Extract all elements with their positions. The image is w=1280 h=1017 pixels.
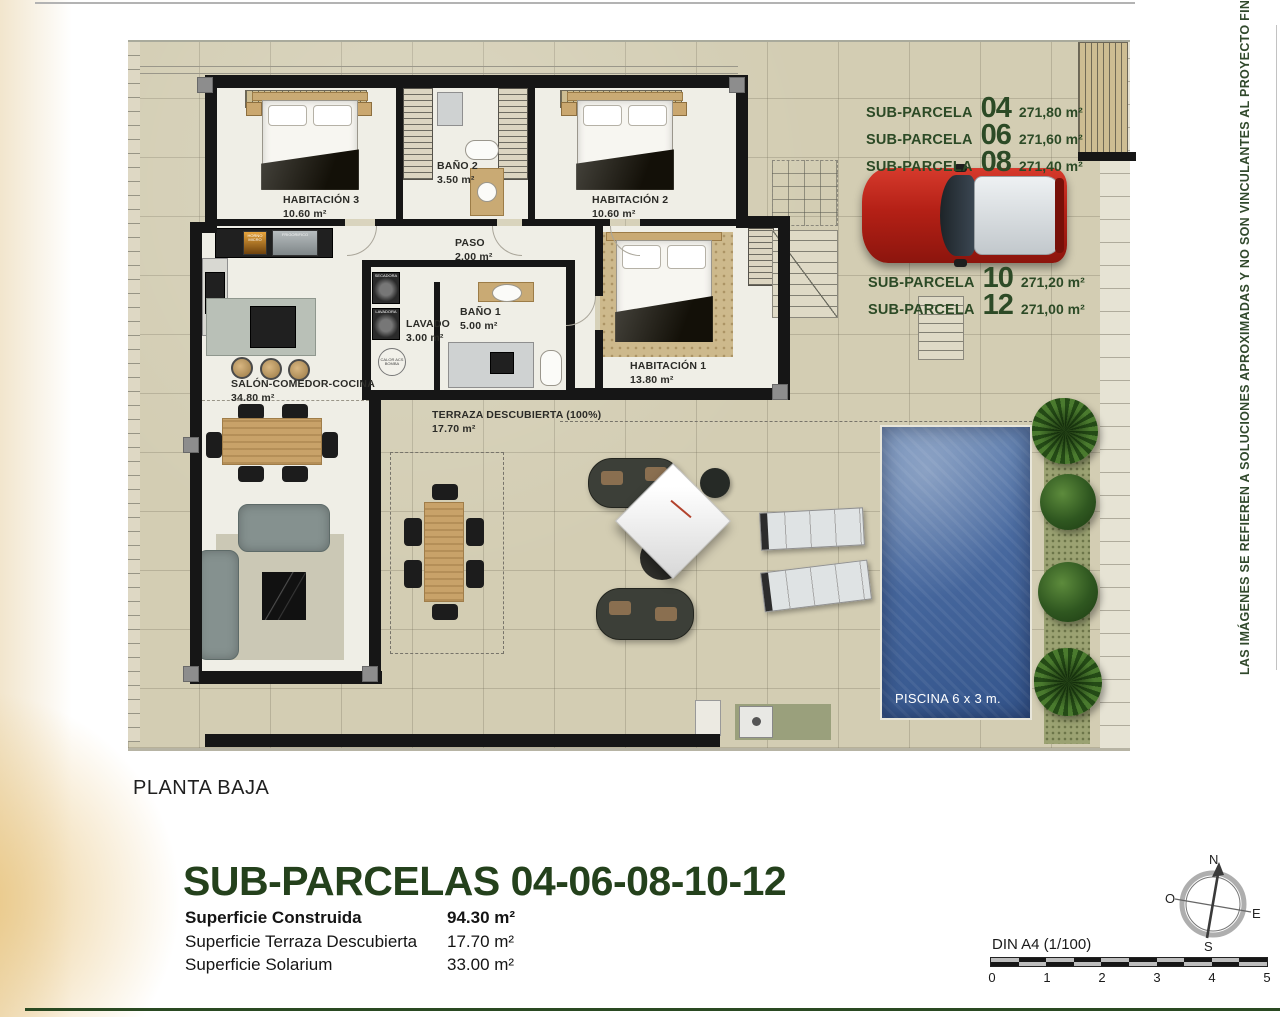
room-label-paso: PASO 2.00 m²	[455, 237, 493, 264]
washer-label: LAVADORA	[375, 309, 396, 314]
washer: LAVADORA	[372, 308, 400, 340]
bed-throw	[576, 149, 674, 189]
plant-bush	[1040, 474, 1096, 530]
scale-label: DIN A4 (1/100)	[992, 936, 1272, 953]
parcel-number: 08	[981, 146, 1011, 179]
pillar	[362, 666, 378, 682]
terrace-chair	[466, 560, 484, 588]
swimming-pool: PISCINA 6 x 3 m.	[880, 425, 1032, 720]
scale-ticks: 0 1 2 3 4 5	[990, 970, 1268, 986]
side-table	[700, 468, 730, 498]
boiler-label: CALOR ACS BOMBA	[379, 358, 405, 367]
scale-bar-segments	[990, 957, 1268, 967]
room-label-hab3: HABITACIÓN 3 10.60 m²	[283, 194, 359, 221]
wall	[572, 388, 790, 400]
room-label-salon: SALÓN-COMEDOR-COCINA 34.80 m²	[231, 378, 375, 405]
summary-row: Superficie Terraza Descubierta 17.70 m²	[185, 932, 417, 952]
disclaimer-text: LAS IMÁGENES SE REFIEREN A SOLUCIONES AP…	[1238, 25, 1258, 675]
pillow	[583, 105, 622, 126]
terrace-chair	[466, 518, 484, 546]
room-area: 3.50 m²	[437, 174, 478, 188]
bed-throw	[261, 149, 359, 189]
room-area: 3.00 m²	[406, 332, 450, 346]
wall	[736, 75, 748, 225]
parcel-top-border	[128, 40, 1130, 42]
room-area: 5.00 m²	[460, 320, 501, 334]
dryer-label: SECADORA	[375, 273, 397, 278]
wall	[205, 75, 217, 228]
pillar	[183, 437, 199, 453]
dryer: SECADORA	[372, 272, 400, 304]
fridge: FRIGORIFICO	[272, 230, 318, 256]
parcel-bottom-border	[128, 748, 1130, 751]
summary-value: 94.30 m²	[447, 908, 515, 928]
room-name: SALÓN-COMEDOR-COCINA	[231, 378, 375, 392]
dining-chair	[238, 466, 264, 482]
compass-east-label: E	[1252, 906, 1261, 921]
compass-north-label: N	[1209, 852, 1218, 867]
room-label-hab2: HABITACIÓN 2 10.60 m²	[592, 194, 668, 221]
parcel-area: 271,20 m²	[1021, 274, 1085, 290]
dining-chair	[206, 432, 222, 458]
wall	[528, 88, 535, 219]
scale-tick: 0	[988, 970, 995, 985]
nightstand	[671, 102, 687, 116]
room-name: PASO	[455, 237, 493, 251]
nightstand	[356, 102, 372, 116]
sink-bano2	[477, 182, 497, 202]
parcel-area: 271,00 m²	[1021, 301, 1085, 317]
shower-control-bano1	[490, 352, 514, 374]
room-area: 34.80 m²	[231, 392, 375, 406]
room-name: TERRAZA DESCUBIERTA (100%)	[432, 409, 601, 423]
cooktop	[250, 306, 296, 348]
parcel-name: SUB-PARCELA	[868, 302, 975, 318]
parcel-area: 271,80 m²	[1019, 104, 1083, 120]
wardrobe-hab1	[748, 228, 774, 286]
sun-lounger	[759, 507, 865, 550]
scale-tick: 3	[1153, 970, 1160, 985]
parcel-number: 12	[983, 289, 1013, 322]
scale-tick: 4	[1208, 970, 1215, 985]
room-name: HABITACIÓN 1	[630, 360, 706, 374]
floor-name: PLANTA BAJA	[133, 777, 269, 800]
terrace-chair	[432, 484, 458, 500]
fridge-label: FRIGORIFICO	[273, 233, 317, 237]
shower-head-icon	[752, 717, 761, 726]
room-name: LAVADO	[406, 318, 450, 332]
wall	[190, 222, 202, 684]
pillow	[667, 245, 706, 269]
compass-west-label: O	[1165, 891, 1175, 906]
dining-chair	[282, 466, 308, 482]
wall	[205, 75, 748, 88]
wall	[190, 671, 382, 684]
room-name: BAÑO 2	[437, 160, 478, 174]
bed-throw	[615, 296, 713, 342]
terrace-chair	[432, 604, 458, 620]
toilet-bano1	[540, 350, 562, 386]
wall-perimeter-bottom	[205, 734, 720, 747]
summary-value: 17.70 m²	[447, 932, 514, 952]
oven-label: HORNO MICRO	[244, 234, 266, 243]
scale-tick: 5	[1263, 970, 1270, 985]
sink-bano1	[492, 284, 522, 302]
plant-grass	[1032, 398, 1098, 464]
room-label-hab1: HABITACIÓN 1 13.80 m²	[630, 360, 706, 387]
sofa-vertical	[197, 550, 239, 660]
plant-bush	[1038, 562, 1098, 622]
dining-chair	[322, 432, 338, 458]
cushion	[655, 607, 677, 621]
room-label-lavado: LAVADO 3.00 m²	[406, 318, 450, 345]
bar-stool	[231, 357, 253, 379]
room-area: 10.60 m²	[592, 208, 668, 222]
wall	[362, 390, 577, 400]
terrace-dashed-boundary	[560, 421, 1052, 422]
wall	[778, 222, 790, 400]
summary-row: Superficie Solarium 33.00 m²	[185, 955, 332, 975]
room-label-bano1: BAÑO 1 5.00 m²	[460, 306, 501, 333]
wall	[396, 88, 403, 219]
parcel-left-boundary	[128, 42, 140, 742]
car-rear-window	[1055, 178, 1064, 253]
closet-hall-left	[403, 88, 433, 180]
pillow	[268, 105, 307, 126]
page-top-rule	[35, 2, 1135, 4]
room-name: HABITACIÓN 3	[283, 194, 359, 208]
room-name: HABITACIÓN 2	[592, 194, 668, 208]
cushion	[609, 601, 631, 615]
sofa-horizontal	[238, 504, 330, 552]
terrace-chair	[404, 560, 422, 588]
summary-label: Superficie Construida	[185, 908, 362, 927]
car-windshield	[940, 175, 976, 256]
nightstand	[246, 102, 262, 116]
parcel-name: SUB-PARCELA	[866, 159, 973, 175]
right-edge-rule	[1276, 25, 1277, 670]
parcel-area: 271,40 m²	[1019, 158, 1083, 174]
roof-overhang-line	[140, 66, 738, 74]
boiler-unit: CALOR ACS BOMBA	[378, 348, 406, 376]
bed-hab2	[577, 100, 673, 190]
scale-tick: 1	[1043, 970, 1050, 985]
pool-label: PISCINA 6 x 3 m.	[895, 691, 1001, 706]
parcel-row-08: SUB-PARCELA 08 271,40 m²	[866, 146, 1083, 179]
pillar	[197, 77, 213, 93]
toilet-bano2	[465, 140, 499, 160]
wall	[375, 219, 497, 226]
page-bottom-rule	[25, 1008, 1280, 1011]
bed-hab3	[262, 100, 358, 190]
terrace-table	[424, 502, 464, 602]
summary-row: Superficie Construida 94.30 m²	[185, 908, 362, 928]
room-area: 13.80 m²	[630, 374, 706, 388]
cushion	[601, 471, 623, 485]
dining-table	[222, 418, 322, 465]
shower-tray-bano2	[437, 92, 463, 126]
neighbour-wall	[1078, 152, 1136, 161]
pillar	[183, 666, 199, 682]
room-area: 17.70 m²	[432, 423, 601, 437]
plant-grass	[1034, 648, 1102, 716]
summary-value: 33.00 m²	[447, 955, 514, 975]
room-label-bano2: BAÑO 2 3.50 m²	[437, 160, 478, 187]
bar-stool	[260, 358, 282, 380]
pillow	[628, 105, 667, 126]
pillar	[772, 384, 788, 400]
room-area: 2.00 m²	[455, 251, 493, 265]
coffee-table	[262, 572, 306, 620]
terrace-chair	[404, 518, 422, 546]
scale-bar-row	[991, 962, 1267, 966]
room-name: BAÑO 1	[460, 306, 501, 320]
room-label-terraza: TERRAZA DESCUBIERTA (100%) 17.70 m²	[432, 409, 601, 436]
parcel-row-12: SUB-PARCELA 12 271,00 m²	[868, 289, 1085, 322]
outdoor-sofa	[596, 588, 694, 640]
bed-hab1	[616, 240, 712, 342]
neighbour-wall-hatch	[1078, 42, 1128, 158]
closet-hall-right	[498, 88, 528, 180]
summary-label: Superficie Solarium	[185, 955, 332, 974]
pillow	[313, 105, 352, 126]
wall	[566, 260, 575, 398]
utility-box	[695, 700, 721, 736]
pillar	[729, 77, 745, 93]
nightstand	[561, 102, 577, 116]
car-roof	[974, 176, 1060, 255]
wall	[369, 398, 381, 684]
oven-micro: HORNO MICRO	[243, 231, 267, 255]
wall	[595, 330, 603, 398]
summary-label: Superficie Terraza Descubierta	[185, 932, 417, 951]
parcel-area: 271,60 m²	[1019, 131, 1083, 147]
outdoor-shower	[739, 706, 773, 738]
scale-bar: DIN A4 (1/100) 0 1 2 3 4 5	[990, 936, 1272, 986]
room-area: 10.60 m²	[283, 208, 359, 222]
wall	[595, 226, 603, 296]
scale-tick: 2	[1098, 970, 1105, 985]
car	[862, 168, 1067, 263]
page-title: SUB-PARCELAS 04-06-08-10-12	[183, 858, 786, 905]
